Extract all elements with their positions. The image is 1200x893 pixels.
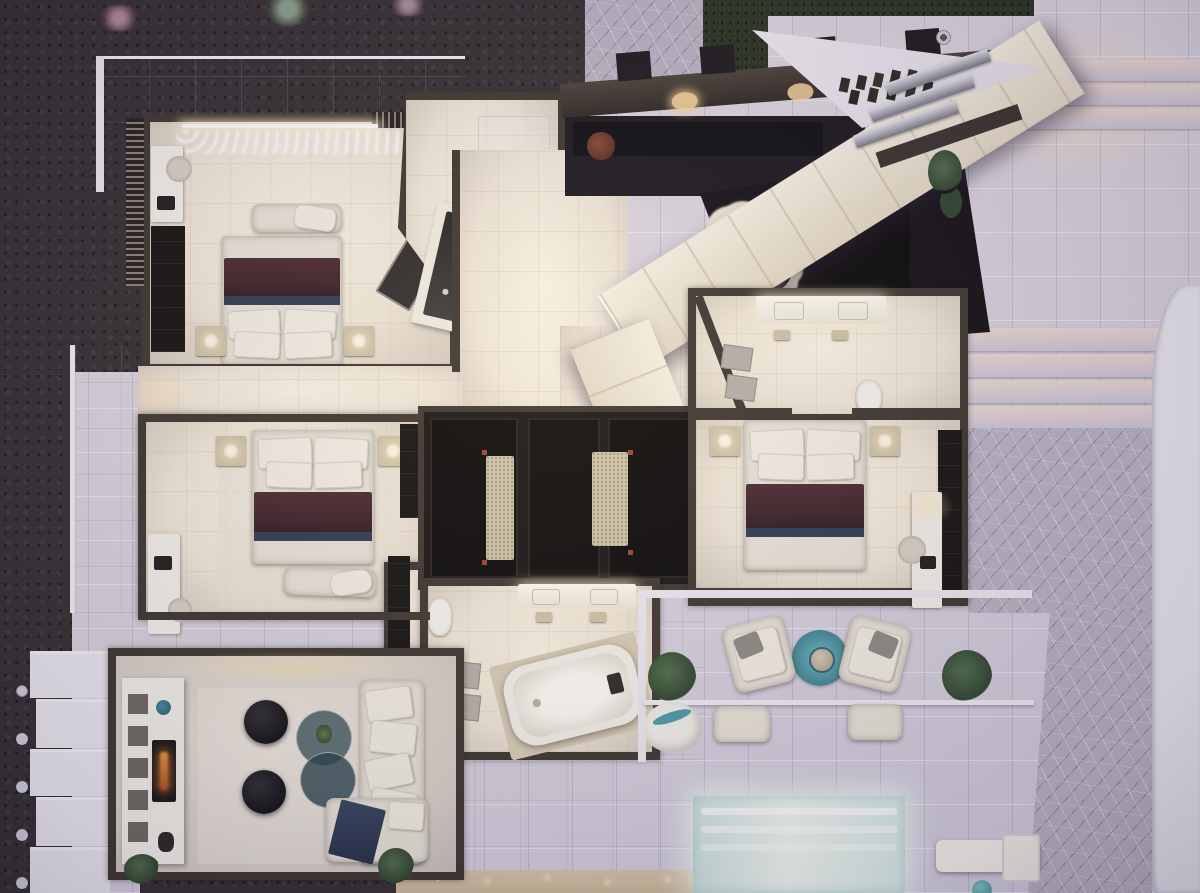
curved-white-path-right-edge bbox=[1152, 285, 1200, 893]
sofa-pillow bbox=[368, 720, 417, 757]
lounger-backrest bbox=[1002, 834, 1040, 882]
niche bbox=[128, 694, 148, 714]
wardrobe-1 bbox=[151, 226, 185, 352]
parapet-left bbox=[96, 56, 104, 192]
toilet bbox=[428, 598, 452, 636]
shell-seat bbox=[644, 702, 702, 752]
pillow bbox=[314, 461, 363, 489]
walk-in-closet bbox=[424, 412, 706, 584]
living-plant bbox=[124, 854, 160, 884]
terrace-ottoman bbox=[714, 706, 770, 742]
vanity-double-right bbox=[756, 296, 886, 324]
navy-throw bbox=[328, 799, 386, 864]
terrace-level-edge bbox=[644, 700, 1034, 705]
chimney-vent bbox=[936, 30, 951, 45]
pillow bbox=[758, 453, 805, 481]
bed-1 bbox=[222, 236, 342, 364]
teal-ball bbox=[972, 880, 992, 893]
pergola-louvers-left bbox=[126, 118, 144, 286]
nightstand bbox=[344, 326, 374, 356]
sink bbox=[590, 589, 618, 605]
sofa-pillow bbox=[364, 685, 414, 723]
terrace-parapet-top bbox=[640, 590, 1032, 598]
light-dot bbox=[1180, 340, 1190, 350]
living-plant bbox=[378, 848, 414, 884]
pool bbox=[693, 796, 905, 893]
partition-wall bbox=[696, 408, 792, 417]
desk-chair bbox=[166, 156, 192, 182]
shower-column bbox=[388, 556, 410, 652]
throw bbox=[329, 568, 374, 598]
terrace-ottoman bbox=[848, 704, 902, 740]
table-lamp bbox=[876, 432, 894, 450]
teal-bowl bbox=[156, 700, 171, 715]
hedge-top-right bbox=[768, 0, 1034, 16]
pillow bbox=[806, 453, 855, 481]
laptop bbox=[154, 556, 172, 570]
table-lamp bbox=[222, 442, 240, 460]
pool-step bbox=[701, 826, 897, 833]
pillow bbox=[266, 461, 313, 489]
planter-slab bbox=[30, 651, 110, 698]
runner-rug bbox=[486, 456, 514, 560]
nightstand bbox=[216, 436, 246, 466]
shower-mat bbox=[724, 374, 757, 402]
shower-mat bbox=[720, 344, 753, 372]
nightstand bbox=[710, 426, 740, 456]
navy-fold bbox=[224, 296, 340, 305]
floorplan-render bbox=[0, 0, 1200, 893]
sun-lounger bbox=[936, 834, 1040, 878]
vanity-stool bbox=[832, 330, 848, 340]
sofa-pillow bbox=[387, 801, 425, 831]
cove-light bbox=[182, 124, 378, 128]
round-pouf bbox=[244, 700, 288, 744]
partition-wall bbox=[852, 408, 962, 417]
sink bbox=[838, 302, 868, 320]
throw bbox=[293, 203, 338, 233]
pillow bbox=[283, 331, 332, 359]
vanity-stool bbox=[590, 612, 606, 622]
runner-rug bbox=[592, 452, 628, 546]
vanity-stool bbox=[774, 330, 790, 340]
planter-slab bbox=[36, 699, 110, 748]
sink bbox=[774, 302, 804, 320]
path-light-dots bbox=[1180, 340, 1190, 880]
sheer-curtains bbox=[176, 130, 402, 154]
nightstand bbox=[196, 326, 226, 356]
round-rust-table bbox=[587, 132, 615, 160]
hallway-bottom-wall bbox=[138, 612, 430, 620]
bed-3 bbox=[744, 420, 866, 570]
navy-fold bbox=[746, 528, 864, 537]
sofa-pillow bbox=[363, 752, 415, 793]
wall-niches bbox=[128, 694, 148, 850]
planter-slab bbox=[30, 749, 110, 796]
nightstand bbox=[870, 426, 900, 456]
laptop bbox=[157, 196, 175, 210]
table-plant-sprig bbox=[316, 724, 332, 744]
side-table bbox=[809, 647, 835, 673]
round-pouf bbox=[242, 770, 286, 814]
fireplace bbox=[152, 740, 176, 802]
post-lamp bbox=[16, 685, 28, 697]
planter-slab bbox=[30, 847, 110, 893]
table-lamp bbox=[350, 332, 368, 350]
foot-bench-2 bbox=[284, 566, 377, 597]
bed-2 bbox=[252, 430, 374, 564]
closet-cabinet bbox=[528, 418, 600, 578]
vanity-stool bbox=[536, 612, 552, 622]
red-accent bbox=[482, 450, 487, 455]
terrace-plant bbox=[648, 652, 696, 702]
sink bbox=[532, 589, 560, 605]
entry-plant bbox=[928, 150, 962, 194]
flower-bush-pink bbox=[95, 5, 143, 31]
living-cove-glow bbox=[150, 652, 430, 682]
vanity-double bbox=[518, 584, 636, 608]
pool-step bbox=[701, 808, 897, 815]
table-lamp bbox=[716, 432, 734, 450]
hall-lamp-glow bbox=[128, 372, 188, 420]
sofa-chaise bbox=[326, 798, 428, 862]
shell-seat-teal-stripe bbox=[651, 706, 692, 728]
pillow bbox=[233, 331, 280, 359]
art-piece bbox=[839, 77, 851, 93]
foyer-west-wall bbox=[452, 150, 460, 372]
navy-fold bbox=[254, 532, 372, 541]
pool-step bbox=[701, 844, 897, 851]
planter-slab bbox=[36, 797, 110, 846]
skylight-box bbox=[616, 51, 652, 82]
desk-lamp-glow bbox=[900, 486, 954, 526]
console-decor bbox=[158, 832, 174, 852]
table-lamp bbox=[202, 332, 220, 350]
laptop bbox=[920, 556, 936, 569]
flame bbox=[160, 752, 168, 790]
terrace-plant bbox=[942, 650, 992, 702]
foot-bench-1 bbox=[252, 204, 342, 232]
